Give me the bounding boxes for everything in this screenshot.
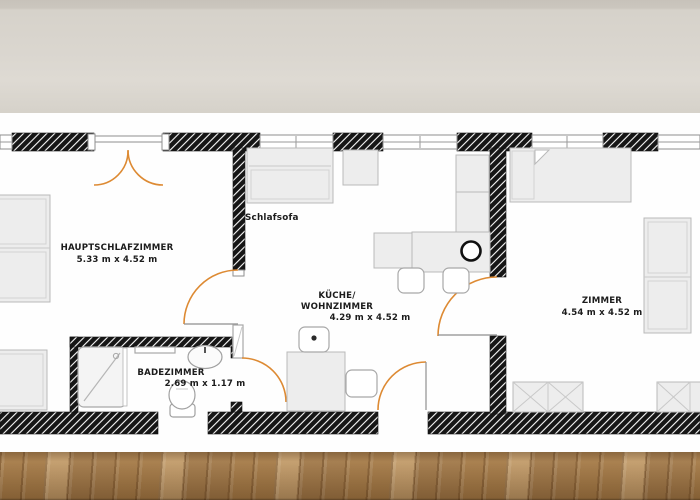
sleeper-sofa [247, 148, 333, 203]
wardrobe-east [644, 218, 691, 333]
stool-2 [443, 268, 469, 293]
room-dim-zimmer: 4.54 m x 4.52 m [562, 308, 643, 318]
bathroom-door [233, 325, 286, 402]
chair-right [346, 370, 377, 397]
window-kitchen-2 [383, 135, 457, 149]
kitchen-counter-vertical [456, 192, 489, 235]
wall-kitchen-zimmer-upper [490, 148, 506, 277]
window-zimmer-2 [658, 135, 700, 149]
chair-top [299, 327, 329, 352]
single-bed [510, 148, 631, 202]
wall-bedroom-kitchen [233, 148, 245, 270]
kitchen-table [374, 233, 412, 268]
balcony-double-door [88, 134, 169, 185]
wardrobe [0, 195, 50, 302]
cabinet [0, 350, 47, 410]
sink-symbol [462, 242, 481, 261]
bedroom-furniture [0, 195, 50, 410]
exterior-bottom-wall [0, 412, 700, 434]
room-label-kueche-line1: KÜCHE/ [318, 290, 356, 301]
room-label-badezimmer: BADEZIMMER [137, 368, 204, 378]
wall-bath-east-lower [231, 402, 242, 412]
annotation-schlafsofa: Schlafsofa [245, 213, 299, 223]
shower [78, 347, 127, 407]
floor-plan-drawing: HAUPTSCHLAFZIMMER 5.33 m x 4.52 m Schlaf… [0, 0, 700, 500]
fridge [456, 155, 489, 192]
towel-shelf [135, 347, 175, 353]
dresser-1 [513, 382, 583, 412]
room-dim-kueche: 4.29 m x 4.52 m [330, 313, 411, 323]
floor-plan-photo: HAUPTSCHLAFZIMMER 5.33 m x 4.52 m Schlaf… [0, 0, 700, 500]
wall-kitchen-zimmer-lower [490, 336, 506, 414]
kitchen-living-furniture [247, 148, 490, 411]
wall-bath-west [70, 337, 78, 412]
window-kitchen-1 [260, 135, 333, 149]
stool-1 [398, 268, 424, 293]
entrance-door [378, 362, 426, 410]
window-zimmer-1 [532, 135, 603, 149]
bedroom-door [184, 270, 244, 324]
dresser-2 [657, 382, 700, 412]
room-label-kueche-line2: WOHNZIMMER [301, 302, 373, 312]
zimmer-furniture [510, 148, 700, 412]
room-dim-badezimmer: 2.69 m x 1.17 m [165, 379, 246, 389]
room-dim-hauptschlafzimmer: 5.33 m x 4.52 m [77, 255, 158, 265]
window-bedroom-left [0, 135, 12, 149]
room-label-zimmer: ZIMMER [582, 296, 622, 306]
room-label-hauptschlafzimmer: HAUPTSCHLAFZIMMER [61, 243, 174, 253]
side-table [343, 150, 378, 185]
dining-table [287, 352, 345, 411]
washbasin [188, 346, 222, 369]
